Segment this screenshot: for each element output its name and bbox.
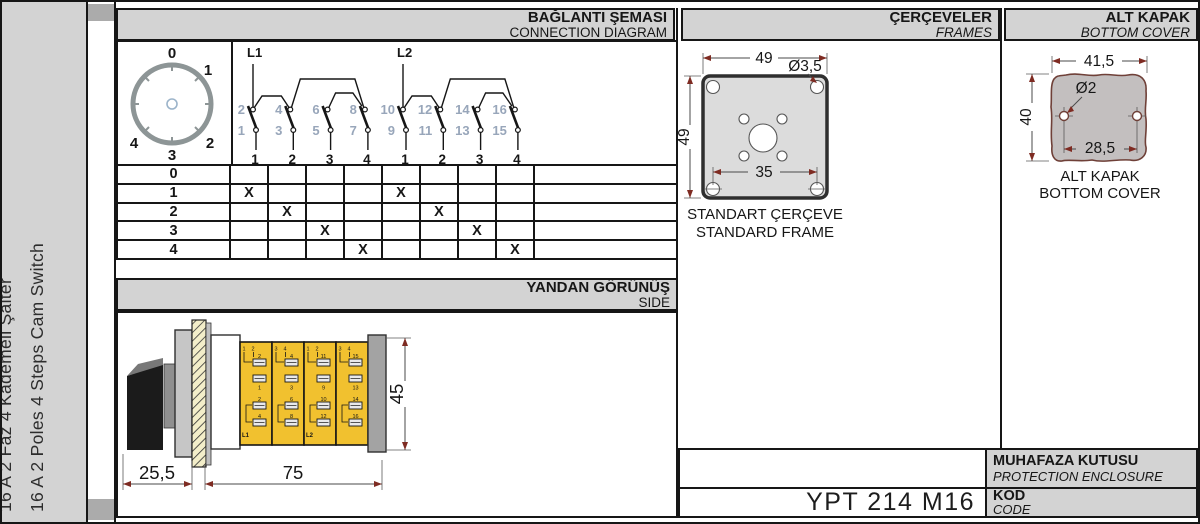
step-cell [230, 165, 268, 184]
product-title-english: 16 A 2 Poles 4 Steps Cam Switch [27, 243, 48, 512]
terminal-number-bottom: 3 [275, 123, 282, 138]
module-terminal-number: 11 [321, 354, 327, 360]
header-connection-en: CONNECTION DIAGRAM [509, 25, 667, 40]
end-plate [368, 335, 386, 452]
header-connection-diagram: BAĞLANTI ŞEMASI CONNECTION DIAGRAM [116, 8, 675, 41]
module-terminal-number: 9 [322, 386, 325, 392]
module-line-label: L2 [306, 433, 314, 439]
pole-column-number: 2 [439, 152, 447, 164]
step-cell [344, 184, 382, 203]
step-cell [268, 240, 306, 259]
header-connection-tr: BAĞLANTI ŞEMASI [528, 10, 667, 25]
terminal-number-top: 6 [312, 102, 319, 117]
pole-column-number: 4 [513, 152, 521, 164]
header-cover-tr: ALT KAPAK [1106, 10, 1190, 25]
module-terminal-number: 2 [258, 354, 261, 360]
frames-drawing: 49 Ø3,5 49 35 STANDART ÇERÇEVE STANDARD … [678, 41, 1000, 448]
datasheet-page: { "colors":{"panel_gray":"#d3d3d3","spin… [0, 0, 1200, 524]
mounting-plate [175, 330, 192, 457]
side-view-drawing: 122124L1344368121191012L23415131416 45 2… [118, 313, 676, 516]
step-cell [496, 203, 534, 222]
terminal-number-bottom: 15 [492, 123, 506, 138]
step-cell: X [344, 240, 382, 259]
step-cell [458, 240, 496, 259]
step-cell [420, 184, 458, 203]
header-frames: ÇERÇEVELER FRAMES [681, 8, 1000, 41]
step-cell [344, 221, 382, 240]
connection-diagram: L1211432653874L21091121121413316154 [231, 40, 678, 166]
side-view: 122124L1344368121191012L23415131416 45 2… [116, 311, 678, 518]
spine-bottom-square [88, 499, 114, 520]
step-table-wrap: 01XX2XX3XX4XX [116, 164, 678, 260]
step-filler-cell [534, 165, 677, 184]
module-terminal-number: 8 [290, 414, 293, 420]
panel-hatched [192, 320, 206, 467]
terminal-number-top: 4 [275, 102, 283, 117]
dim-frame-height: 49 [678, 128, 693, 145]
terminal-number-top: 8 [350, 102, 357, 117]
module-terminal-number: 4 [290, 354, 293, 360]
step-row-label: 0 [117, 165, 230, 184]
step-row-label: 3 [117, 221, 230, 240]
step-cell [496, 221, 534, 240]
module-corner-number: 4 [347, 347, 350, 353]
module-corner-number: 1 [306, 347, 309, 353]
step-cell [496, 184, 534, 203]
module-terminal-number: 1 [258, 386, 261, 392]
pole-column-number: 3 [476, 152, 484, 164]
step-cell [268, 184, 306, 203]
step-cell: X [496, 240, 534, 259]
step-cell [382, 203, 420, 222]
product-title-turkish: 16 A 2 Faz 4 Kademeli Şalter [0, 278, 16, 512]
step-cell [458, 165, 496, 184]
header-frames-tr: ÇERÇEVELER [889, 10, 992, 25]
step-filler-cell [534, 221, 677, 240]
step-cell: X [306, 221, 344, 240]
terminal-number-bottom: 7 [350, 123, 357, 138]
step-cell [268, 221, 306, 240]
step-cell: X [268, 203, 306, 222]
switch-position-dial: 0 1 2 3 4 [116, 40, 233, 166]
phase-label: L2 [397, 45, 412, 60]
dial-drawing: 0 1 2 3 4 [118, 42, 231, 164]
module-corner-number: 3 [274, 347, 277, 353]
pole-column-number: 3 [326, 152, 334, 164]
step-cell [382, 165, 420, 184]
terminal-number-bottom: 5 [312, 123, 319, 138]
code-label-en: CODE [993, 503, 1190, 517]
module-terminal-number: 10 [320, 397, 326, 403]
pole-column-number: 4 [363, 152, 371, 164]
frame-caption-tr: STANDART ÇERÇEVE [687, 206, 843, 223]
module-terminal-number: 12 [320, 414, 326, 420]
knob [127, 365, 163, 450]
dial-pos-1: 1 [204, 62, 212, 79]
step-row: 0 [117, 165, 677, 184]
step-row-label: 2 [117, 203, 230, 222]
module-corner-number: 2 [315, 347, 318, 353]
step-cell: X [230, 184, 268, 203]
step-cell [344, 165, 382, 184]
module-corner-number: 4 [283, 347, 286, 353]
terminal-number-top: 2 [238, 102, 245, 117]
header-side-view: YANDAN GÖRÜNÜŞ SIDE [116, 278, 678, 311]
dim-knob: 25,5 [139, 462, 175, 483]
step-filler-cell [534, 240, 677, 259]
code-value: YPT 214 M16 [806, 488, 975, 517]
terminal-number-top: 16 [492, 102, 506, 117]
step-cell [306, 165, 344, 184]
step-cell [420, 165, 458, 184]
dim-height: 45 [386, 384, 407, 405]
module-terminal-number: 13 [352, 386, 358, 392]
step-row: 1XX [117, 184, 677, 203]
terminal-number-bottom: 11 [419, 123, 433, 138]
step-row: 3XX [117, 221, 677, 240]
header-side-en: SIDE [638, 295, 670, 310]
phase-label: L1 [247, 45, 262, 60]
step-row-label: 4 [117, 240, 230, 259]
sidebar: 16 A 2 Faz 4 Kademeli Şalter 16 A 2 Pole… [2, 2, 88, 522]
step-cell [230, 240, 268, 259]
code-label-cell: KOD CODE [985, 487, 1198, 518]
dim-cover-height: 40 [1018, 108, 1035, 126]
module-corner-number: 3 [338, 347, 341, 353]
step-filler-cell [534, 184, 677, 203]
terminal-number-bottom: 13 [455, 123, 469, 138]
dim-cover-holes-span: 28,5 [1085, 140, 1115, 157]
step-cell [344, 203, 382, 222]
module-corner-number: 1 [242, 347, 245, 353]
dim-frame-hole: Ø3,5 [788, 58, 822, 75]
terminal-number-top: 12 [418, 102, 432, 117]
module-line-label: L1 [242, 433, 250, 439]
terminal-number-bottom: 9 [388, 123, 395, 138]
dial-pos-2: 2 [206, 135, 214, 152]
step-cell [496, 165, 534, 184]
step-row: 2XX [117, 203, 677, 222]
code-value-cell: YPT 214 M16 [678, 487, 987, 518]
pole-column-number: 1 [401, 152, 409, 164]
step-cell [306, 184, 344, 203]
header-cover-en: BOTTOM COVER [1081, 25, 1190, 40]
terminal-number-top: 14 [455, 102, 470, 117]
bottom-cover-drawing: Ø2 41,5 40 28,5 ALT KAPAK BOTTOM COVER [1002, 41, 1198, 448]
enclosure-value-cell [678, 448, 987, 489]
dial-pos-0: 0 [168, 45, 176, 62]
cover-caption-en: BOTTOM COVER [1039, 185, 1161, 202]
step-cell: X [420, 203, 458, 222]
dim-body: 75 [283, 462, 304, 483]
step-cell [458, 184, 496, 203]
dim-cover-hole: Ø2 [1076, 80, 1097, 97]
terminal-number-bottom: 1 [238, 123, 245, 138]
step-cell [230, 221, 268, 240]
step-cell [268, 165, 306, 184]
header-bottom-cover: ALT KAPAK BOTTOM COVER [1004, 8, 1198, 41]
enclosure-label-en: PROTECTION ENCLOSURE [993, 469, 1190, 484]
module-terminal-number: 4 [258, 414, 261, 420]
step-cell [458, 203, 496, 222]
code-label-tr: KOD [993, 489, 1190, 503]
dial-pos-4: 4 [130, 135, 139, 152]
module-terminal-number: 16 [352, 414, 358, 420]
dim-frame-width: 49 [755, 50, 772, 67]
step-filler-cell [534, 203, 677, 222]
contact-modules: 122124L1344368121191012L23415131416 [240, 342, 368, 445]
step-cell [420, 240, 458, 259]
switch-front-body [211, 335, 240, 449]
module-corner-number: 2 [251, 347, 254, 353]
step-cell [230, 203, 268, 222]
step-cell [382, 221, 420, 240]
step-cell: X [458, 221, 496, 240]
cover-caption-tr: ALT KAPAK [1060, 168, 1139, 185]
spine-top-square [88, 4, 114, 21]
step-cell [306, 240, 344, 259]
step-table: 01XX2XX3XX4XX [116, 164, 678, 260]
step-cell: X [382, 184, 420, 203]
pole-column-number: 2 [289, 152, 297, 164]
module-terminal-number: 14 [352, 397, 358, 403]
header-side-tr: YANDAN GÖRÜNÜŞ [526, 280, 670, 295]
step-cell [420, 221, 458, 240]
module-terminal-number: 3 [290, 386, 293, 392]
frame-caption-en: STANDARD FRAME [696, 224, 834, 241]
enclosure-label-cell: MUHAFAZA KUTUSU PROTECTION ENCLOSURE [985, 448, 1198, 489]
spine-column [88, 2, 116, 522]
connection-diagram-drawing: L1211432653874L21091121121413316154 [233, 42, 676, 164]
terminal-number-top: 10 [381, 102, 395, 117]
step-cell [306, 203, 344, 222]
header-frames-en: FRAMES [936, 25, 992, 40]
module-terminal-number: 2 [258, 397, 261, 403]
step-row: 4XX [117, 240, 677, 259]
pole-column-number: 1 [251, 152, 259, 164]
step-cell [382, 240, 420, 259]
dial-pos-3: 3 [168, 147, 176, 164]
dim-cover-width: 41,5 [1084, 53, 1114, 70]
enclosure-label-tr: MUHAFAZA KUTUSU [993, 454, 1190, 469]
module-terminal-number: 15 [352, 354, 358, 360]
step-row-label: 1 [117, 184, 230, 203]
dim-frame-inner: 35 [755, 164, 772, 181]
module-terminal-number: 6 [290, 397, 293, 403]
panel-strip [206, 323, 211, 465]
